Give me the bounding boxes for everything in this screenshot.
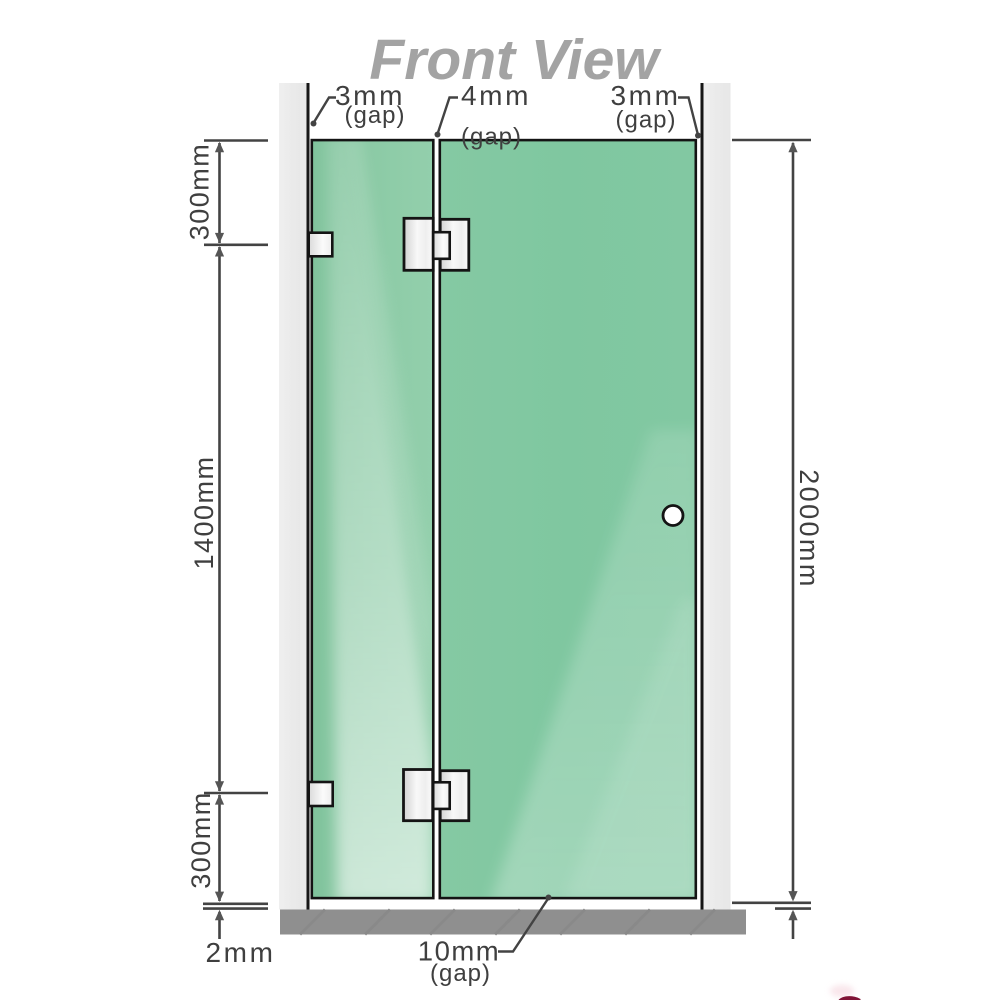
svg-text:(gap): (gap) [430, 960, 491, 987]
svg-text:2mm: 2mm [205, 937, 275, 968]
svg-text:1400mm: 1400mm [189, 455, 219, 569]
svg-text:300mm: 300mm [185, 143, 215, 241]
svg-text:4mm: 4mm [461, 80, 531, 111]
svg-text:300mm: 300mm [186, 791, 216, 889]
svg-text:(gap): (gap) [461, 124, 522, 151]
svg-text:(gap): (gap) [344, 102, 405, 129]
svg-text:2000mm: 2000mm [794, 469, 824, 588]
svg-text:(gap): (gap) [615, 107, 676, 134]
